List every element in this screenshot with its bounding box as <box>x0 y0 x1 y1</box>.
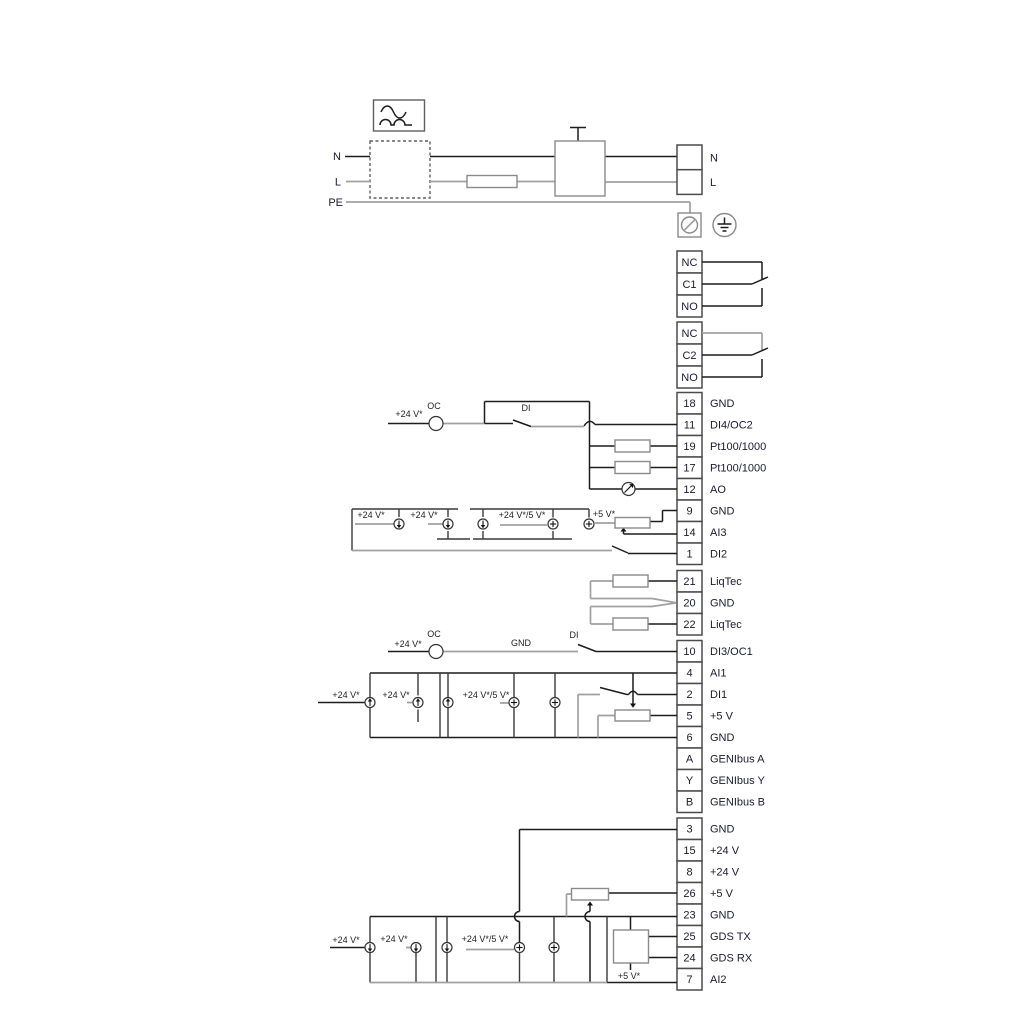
current-source-icon <box>443 519 453 529</box>
terminal-label: GENIbus B <box>710 797 765 809</box>
voltage-source-icon <box>509 698 519 708</box>
terminal-label: AI2 <box>710 974 727 986</box>
current-source-icon <box>365 698 375 708</box>
terminal-number: 8 <box>686 867 692 879</box>
terminal-number: B <box>686 797 693 809</box>
pot-wiper-arrow-down <box>630 704 636 708</box>
current-source-icon <box>413 698 423 708</box>
pe-screw-terminal <box>678 213 701 237</box>
v24-5v-label: +24 V*/5 V* <box>463 690 510 700</box>
terminal-label: GND <box>710 824 735 836</box>
current-source-icon <box>443 698 453 708</box>
potentiometer <box>615 710 650 721</box>
terminal-number: C1 <box>682 279 696 291</box>
analog-output-meter-icon <box>622 483 635 496</box>
terminal-label: DI3/OC1 <box>710 646 753 658</box>
terminal-number: 26 <box>683 888 695 900</box>
terminal-number: NC <box>682 328 698 340</box>
fuse <box>467 176 517 188</box>
terminal-number: 24 <box>683 953 695 965</box>
v24-label: +24 V* <box>357 510 385 520</box>
current-source-icon <box>478 519 488 529</box>
wiring-diagram-page: N L PE N L NC C1 NO NC C2 <box>0 0 1024 1024</box>
v24-label: +24 V* <box>380 934 408 944</box>
supply-terminal-block: N L <box>677 145 718 194</box>
terminal-number: NO <box>681 301 698 313</box>
option-brackets <box>352 509 589 551</box>
terminal-number: 19 <box>683 441 695 453</box>
line-n-label: N <box>333 151 341 163</box>
current-source-icon <box>442 943 452 953</box>
terminal-number: 1 <box>686 549 692 561</box>
relay2-contact-wiring <box>702 348 768 377</box>
di-label: DI <box>522 403 531 413</box>
terminal-number: 22 <box>683 619 695 631</box>
terminal-number: 4 <box>686 668 692 680</box>
terminal-label: Pt100/1000 <box>710 441 766 453</box>
io-terminal-block-2: 10 4 2 5 6 A Y B DI3/OC1 AI1 DI1 +5 V GN… <box>677 641 765 813</box>
voltage-source-icon <box>548 519 558 529</box>
terminal-number: A <box>686 754 694 766</box>
potentiometer <box>572 889 609 901</box>
terminal-label: +24 V <box>710 867 740 879</box>
voltage-source-icon <box>584 519 594 529</box>
terminal-label: LiqTec <box>710 619 742 631</box>
ac-waveform-box <box>374 100 425 131</box>
terminal-label: +5 V <box>710 888 734 900</box>
v5-label: +5 V* <box>618 971 641 981</box>
v24-label: +24 V* <box>382 690 410 700</box>
terminal-label: GDS RX <box>710 953 753 965</box>
pump-wiring-diagram: N L PE N L NC C1 NO NC C2 <box>0 0 1024 1024</box>
terminal-label: DI2 <box>710 549 727 561</box>
relay2-nc-wire <box>702 333 762 351</box>
terminal-number: NC <box>682 257 698 269</box>
current-source-icon <box>411 943 421 953</box>
terminal-number: 20 <box>683 598 695 610</box>
terminal-label: GENIbus A <box>710 754 765 766</box>
terminal-number: 15 <box>683 845 695 857</box>
gds-module-box <box>614 930 649 963</box>
v24-label: +24 V* <box>394 639 422 649</box>
terminal-label: N <box>710 153 718 165</box>
line-pe-label: PE <box>328 197 343 209</box>
line-l-label: L <box>335 177 341 189</box>
terminal-label: +5 V <box>710 711 734 723</box>
voltage-source-icon <box>549 943 559 953</box>
relay1-contact-wiring <box>702 262 768 306</box>
terminal-number: 21 <box>683 576 695 588</box>
di4-wires-gray <box>443 424 584 427</box>
terminal-number: NO <box>681 372 698 384</box>
dashed-component-box <box>370 141 430 198</box>
liqtec-terminal-block: 21 20 22 LiqTec GND LiqTec <box>591 571 743 636</box>
oc-label: OC <box>427 629 441 639</box>
terminal-label: +24 V <box>710 845 740 857</box>
terminal-number: 3 <box>686 824 692 836</box>
resistor-pt100 <box>615 440 650 452</box>
v24-5v-label: +24 V*/5 V* <box>499 510 546 520</box>
terminal-number: 10 <box>683 646 695 658</box>
terminal-number: Y <box>686 775 694 787</box>
voltage-source-icon <box>515 943 525 953</box>
terminal-number: C2 <box>682 350 696 362</box>
terminal-number: 6 <box>686 732 692 744</box>
resistor-pt100 <box>615 462 650 474</box>
oc-source-circle <box>429 645 443 659</box>
pot-wiper-arrow-up <box>587 902 593 906</box>
terminal-label: GND <box>710 910 735 922</box>
earth-ground-icon <box>713 214 736 237</box>
terminal-number: 14 <box>683 527 695 539</box>
terminal-label: GND <box>710 398 735 410</box>
io-terminal-block-3: 3 15 8 26 23 25 24 7 GND +24 V +24 V +5 … <box>677 818 753 990</box>
di4-oc2-circuit: +24 V* OC DI <box>388 401 677 496</box>
terminal-label: GND <box>710 732 735 744</box>
ai1-di1-option-row: +24 V* +24 V* +24 V*/5 V* <box>318 673 677 738</box>
terminal-label: AI3 <box>710 527 727 539</box>
v24-label: +24 V* <box>410 510 438 520</box>
terminal-label: GND <box>710 506 735 518</box>
option-brackets <box>370 673 555 738</box>
terminal-cell <box>677 145 702 170</box>
terminal-label: AI1 <box>710 668 727 680</box>
ai3-di2-option-row: +24 V* +24 V* +24 V*/5 V* +5 V* <box>352 509 677 554</box>
terminal-label: GND <box>710 598 735 610</box>
relay-output-1: NC C1 NO <box>677 251 768 317</box>
terminal-label: LiqTec <box>710 576 742 588</box>
resistor-liqtec <box>613 575 648 587</box>
di-label: DI <box>570 630 579 640</box>
power-section: N L PE N L <box>328 100 736 237</box>
terminal-number: 18 <box>683 398 695 410</box>
terminal-label: GDS TX <box>710 931 751 943</box>
terminal-number: 2 <box>686 689 692 701</box>
gnd-label: GND <box>511 638 532 648</box>
terminal-number: 11 <box>684 420 695 432</box>
v5-label: +5 V* <box>593 509 616 519</box>
v24-5v-label: +24 V*/5 V* <box>462 934 509 944</box>
terminal-number: 9 <box>686 506 692 518</box>
terminal-label: GENIbus Y <box>710 775 765 787</box>
voltage-source-icon <box>550 698 560 708</box>
terminal-number: 5 <box>686 711 692 723</box>
terminal-label: L <box>710 177 716 189</box>
main-switch-box <box>555 141 605 196</box>
oc-label: OC <box>427 401 441 411</box>
io-terminal-block-1: 18 11 19 17 12 9 14 1 GND DI4/OC2 Pt100/… <box>677 393 766 565</box>
terminal-number: 12 <box>683 484 695 496</box>
terminal-cell <box>677 170 702 195</box>
oc-source-circle <box>429 417 443 431</box>
di3-oc1-circuit: +24 V* OC GND DI <box>388 629 677 659</box>
v24-label: +24 V* <box>395 409 423 419</box>
relay-output-2: NC C2 NO <box>677 322 768 388</box>
terminal-number: 25 <box>683 931 695 943</box>
current-source-icon <box>394 519 404 529</box>
terminal-label: DI4/OC2 <box>710 420 753 432</box>
terminal-number: 17 <box>683 463 695 475</box>
potentiometer <box>615 518 650 529</box>
terminal-label: AO <box>710 484 726 496</box>
v24-label: +24 V* <box>332 935 360 945</box>
terminal-label: DI1 <box>710 689 727 701</box>
ai2-gds-option-row: +24 V* +24 V* +24 V*/5 V* +5 V* <box>330 830 677 983</box>
terminal-number: 7 <box>686 974 692 986</box>
v24-label: +24 V* <box>332 690 360 700</box>
current-source-icon <box>365 943 375 953</box>
resistor-liqtec <box>613 618 648 630</box>
terminal-number: 23 <box>683 910 695 922</box>
terminal-label: Pt100/1000 <box>710 463 766 475</box>
